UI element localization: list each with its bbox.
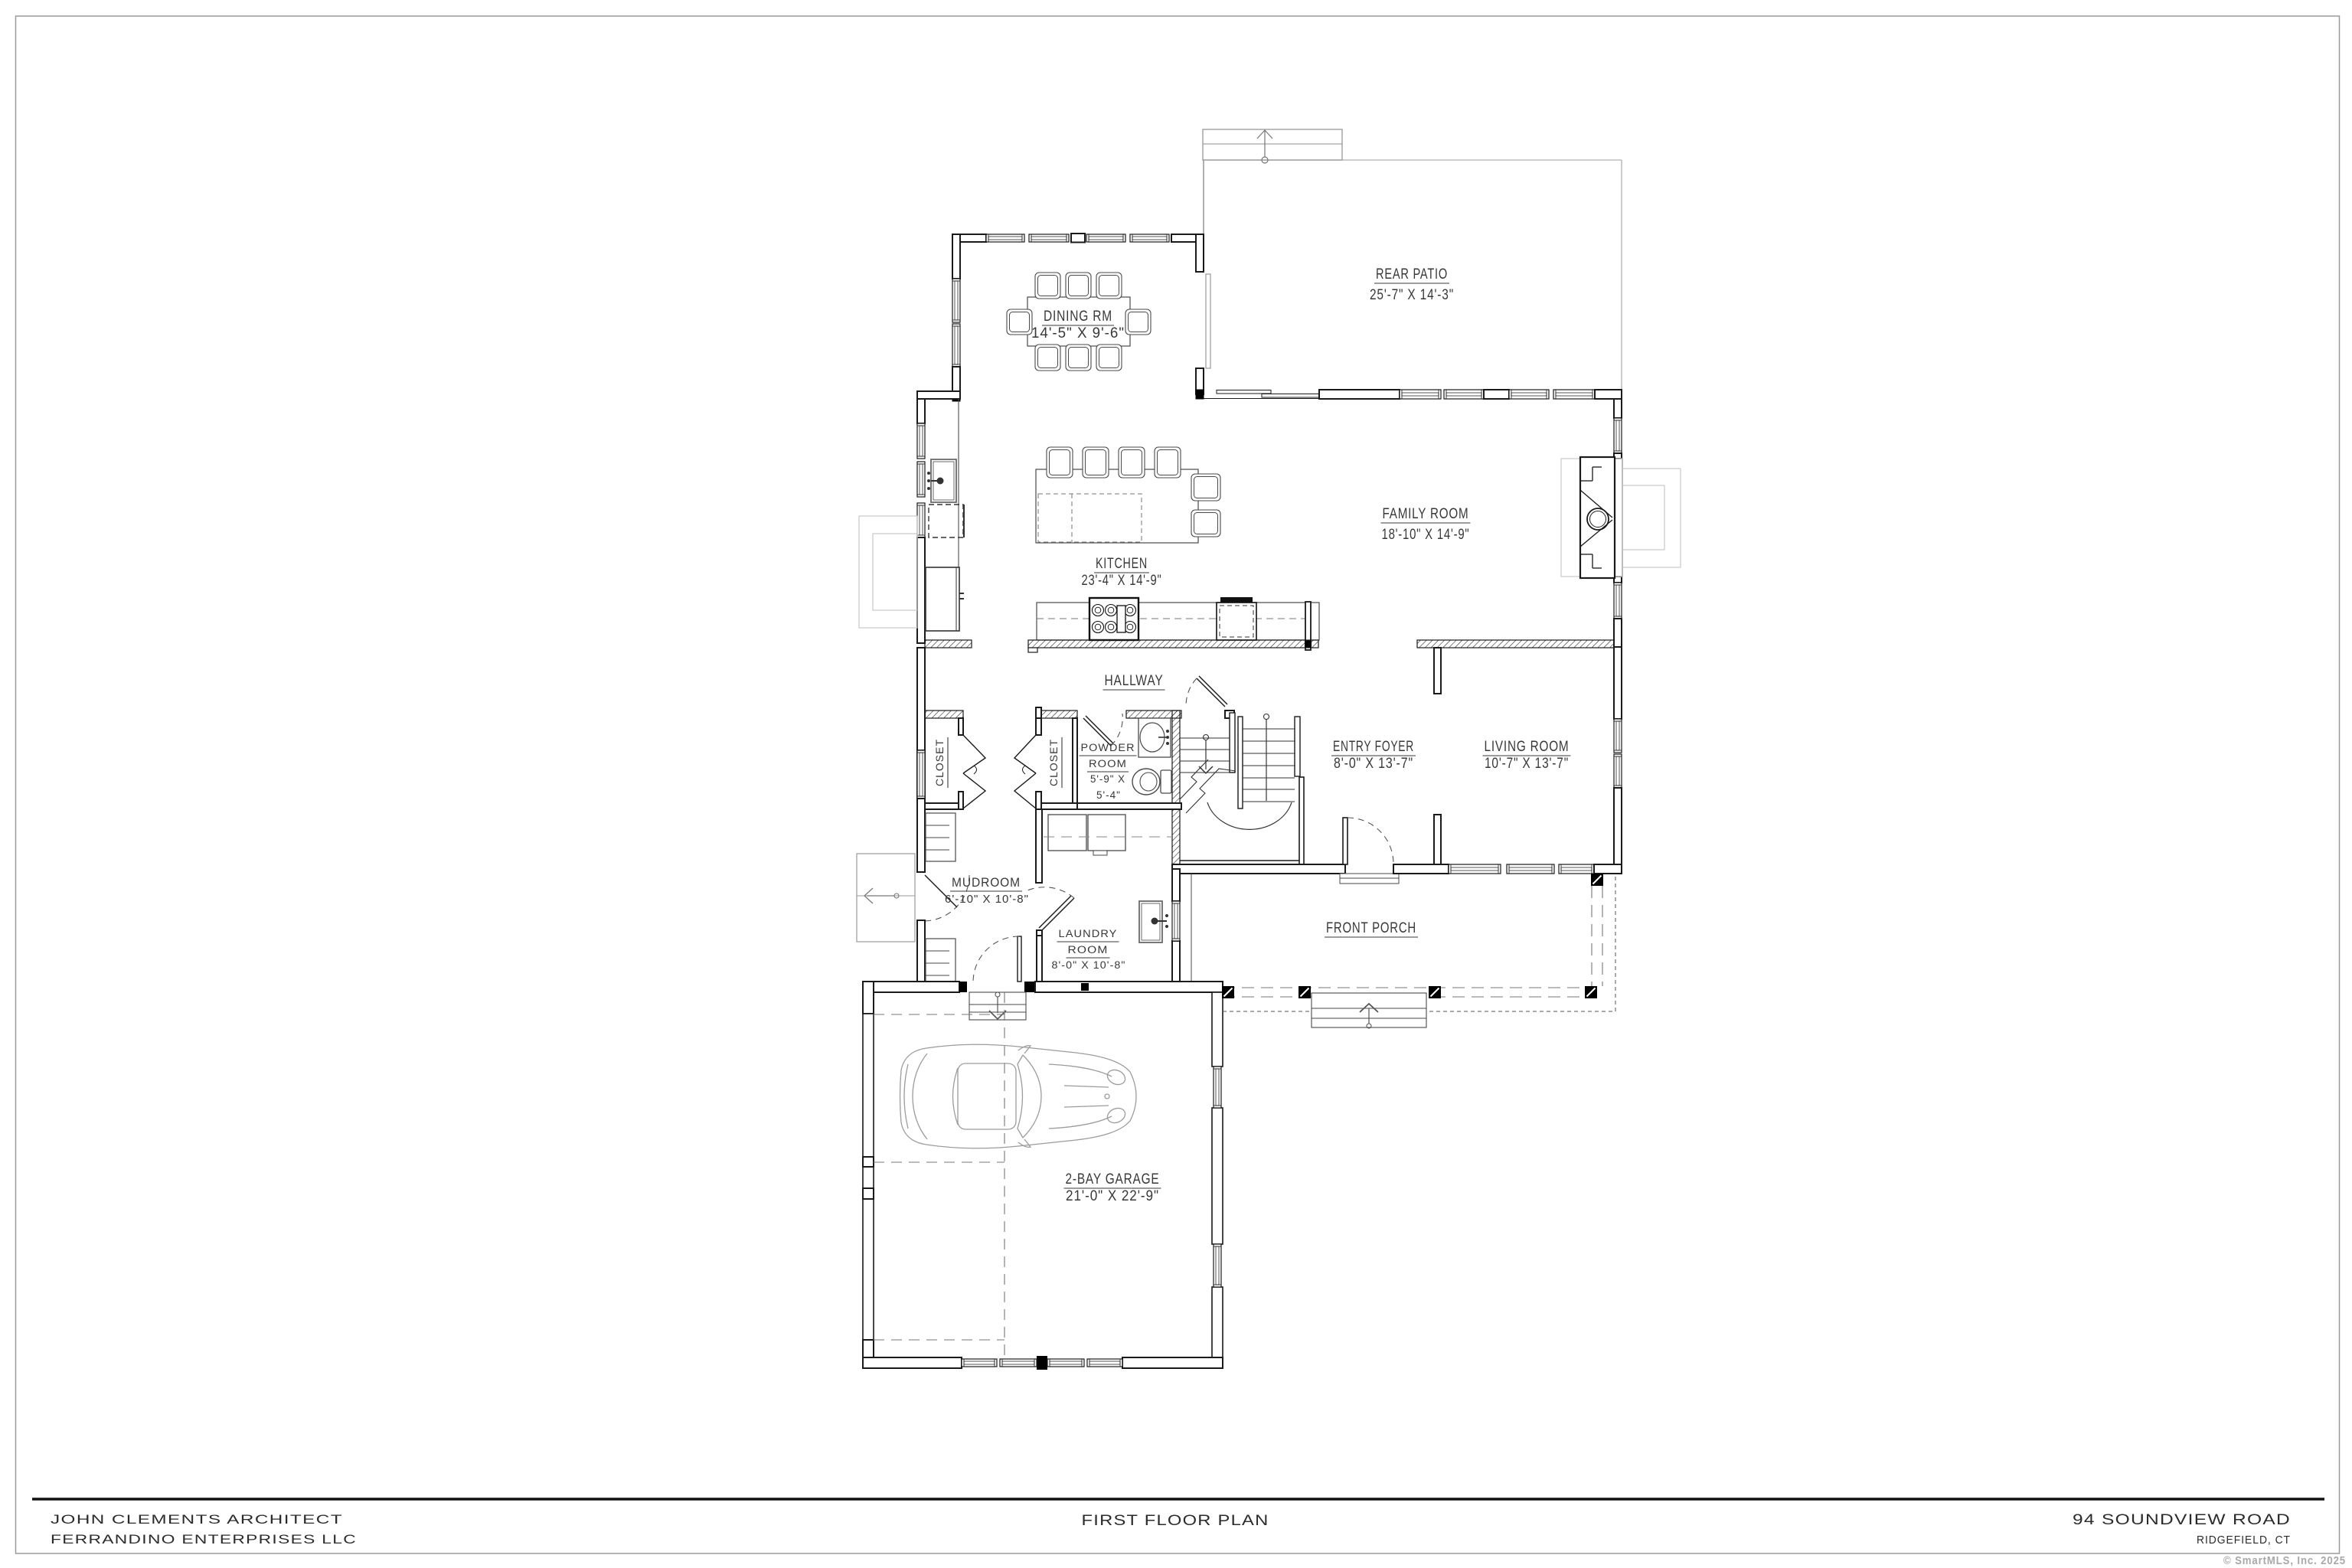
svg-text:FERRANDINO ENTERPRISES LLC: FERRANDINO ENTERPRISES LLC: [51, 1532, 357, 1547]
svg-text:DINING RM: DINING RM: [1044, 309, 1112, 325]
svg-text:RIDGEFIELD, CT: RIDGEFIELD, CT: [2197, 1534, 2291, 1547]
svg-text:14'-5" X 9'-6": 14'-5" X 9'-6": [1031, 325, 1125, 341]
svg-text:23'-4" X 14'-9": 23'-4" X 14'-9": [1082, 573, 1162, 589]
svg-text:© SmartMLS, Inc. 2025: © SmartMLS, Inc. 2025: [2223, 1554, 2346, 1567]
svg-text:25'-7" X 14'-3": 25'-7" X 14'-3": [1370, 287, 1454, 303]
svg-text:10'-7" X 13'-7": 10'-7" X 13'-7": [1485, 756, 1569, 772]
svg-text:REAR PATIO: REAR PATIO: [1376, 266, 1448, 283]
svg-text:CLOSET: CLOSET: [934, 739, 946, 786]
svg-text:JOHN CLEMENTS ARCHITECT: JOHN CLEMENTS ARCHITECT: [51, 1512, 343, 1527]
svg-text:ROOM: ROOM: [1068, 944, 1109, 955]
svg-text:KITCHEN: KITCHEN: [1096, 556, 1148, 572]
svg-text:5'-4": 5'-4": [1096, 789, 1121, 801]
svg-text:2-BAY GARAGE: 2-BAY GARAGE: [1066, 1171, 1160, 1187]
svg-text:5'-9" X: 5'-9" X: [1090, 773, 1125, 785]
svg-text:94 SOUNDVIEW ROAD: 94 SOUNDVIEW ROAD: [2073, 1512, 2291, 1528]
svg-text:18'-10" X 14'-9": 18'-10" X 14'-9": [1382, 527, 1470, 543]
svg-text:POWDER: POWDER: [1081, 742, 1135, 753]
svg-text:LAUNDRY: LAUNDRY: [1059, 928, 1118, 939]
svg-text:8'-0" X 13'-7": 8'-0" X 13'-7": [1334, 756, 1413, 772]
svg-text:21'-0" X 22'-9": 21'-0" X 22'-9": [1066, 1188, 1159, 1204]
svg-text:ROOM: ROOM: [1089, 758, 1127, 769]
svg-text:MUDROOM: MUDROOM: [952, 875, 1021, 890]
svg-text:6'-10" X 10'-8": 6'-10" X 10'-8": [945, 893, 1029, 906]
svg-text:FRONT PORCH: FRONT PORCH: [1326, 920, 1416, 936]
svg-text:CLOSET: CLOSET: [1048, 739, 1060, 786]
svg-text:LIVING ROOM: LIVING ROOM: [1485, 739, 1570, 755]
svg-text:ENTRY FOYER: ENTRY FOYER: [1333, 739, 1414, 755]
svg-text:8'-0" X 10'-8": 8'-0" X 10'-8": [1052, 959, 1126, 971]
svg-text:FIRST FLOOR PLAN: FIRST FLOOR PLAN: [1082, 1513, 1269, 1529]
svg-text:HALLWAY: HALLWAY: [1105, 673, 1164, 689]
svg-text:FAMILY ROOM: FAMILY ROOM: [1383, 506, 1469, 522]
